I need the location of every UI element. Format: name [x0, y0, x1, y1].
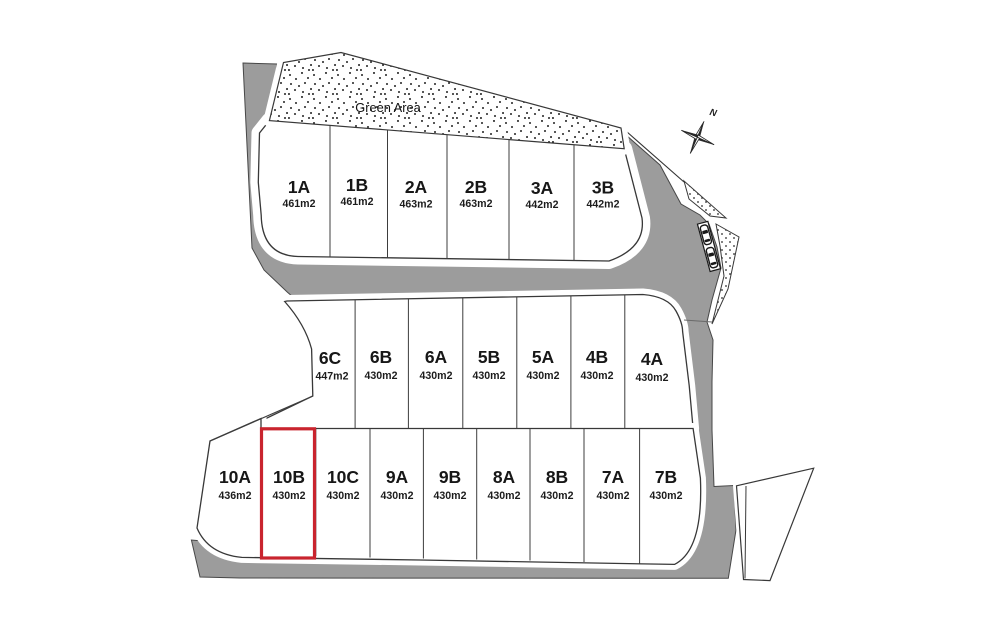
svg-text:442m2: 442m2 [526, 199, 559, 211]
svg-text:430m2: 430m2 [527, 370, 560, 382]
svg-text:447m2: 447m2 [316, 371, 349, 383]
svg-text:10A: 10A [219, 467, 251, 487]
svg-text:8B: 8B [546, 467, 568, 487]
svg-text:461m2: 461m2 [283, 198, 316, 210]
svg-text:463m2: 463m2 [460, 198, 493, 210]
svg-text:4A: 4A [641, 349, 664, 369]
svg-text:10C: 10C [327, 467, 359, 487]
svg-text:430m2: 430m2 [381, 490, 414, 502]
svg-text:1A: 1A [288, 177, 311, 197]
svg-text:N: N [708, 107, 718, 120]
svg-text:436m2: 436m2 [219, 490, 252, 502]
svg-text:442m2: 442m2 [587, 199, 620, 211]
svg-text:5B: 5B [478, 347, 500, 367]
svg-text:Green Area: Green Area [355, 100, 421, 115]
svg-text:6C: 6C [319, 348, 342, 368]
svg-text:9A: 9A [386, 467, 409, 487]
svg-text:430m2: 430m2 [365, 370, 398, 382]
svg-text:1B: 1B [346, 175, 368, 195]
svg-text:5A: 5A [532, 347, 555, 367]
svg-text:9B: 9B [439, 467, 461, 487]
svg-text:430m2: 430m2 [541, 490, 574, 502]
svg-text:430m2: 430m2 [327, 490, 360, 502]
svg-text:8A: 8A [493, 467, 516, 487]
svg-text:430m2: 430m2 [434, 490, 467, 502]
svg-text:430m2: 430m2 [473, 370, 506, 382]
svg-text:7A: 7A [602, 467, 625, 487]
svg-text:430m2: 430m2 [597, 490, 630, 502]
svg-text:4B: 4B [586, 347, 608, 367]
svg-text:2B: 2B [465, 177, 487, 197]
svg-text:461m2: 461m2 [341, 196, 374, 208]
svg-text:463m2: 463m2 [400, 199, 433, 211]
svg-text:10B: 10B [273, 467, 305, 487]
svg-text:430m2: 430m2 [581, 370, 614, 382]
svg-text:3B: 3B [592, 178, 614, 198]
svg-text:430m2: 430m2 [488, 490, 521, 502]
svg-text:7B: 7B [655, 467, 677, 487]
svg-text:430m2: 430m2 [636, 372, 669, 384]
svg-text:430m2: 430m2 [420, 370, 453, 382]
svg-text:6A: 6A [425, 347, 448, 367]
svg-text:3A: 3A [531, 178, 554, 198]
svg-text:6B: 6B [370, 347, 392, 367]
svg-text:430m2: 430m2 [650, 490, 683, 502]
svg-text:2A: 2A [405, 177, 428, 197]
svg-text:430m2: 430m2 [273, 490, 306, 502]
